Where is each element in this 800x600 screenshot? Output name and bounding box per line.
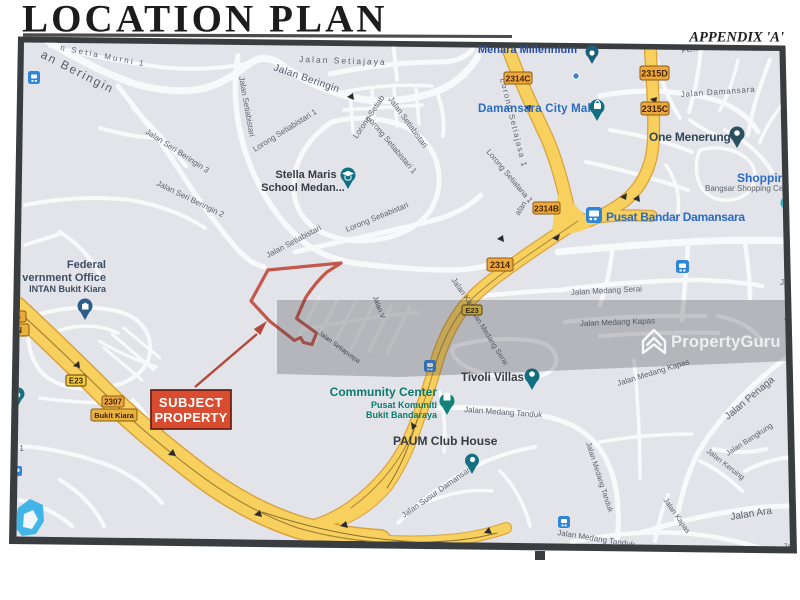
svg-text:INTAN Bukit Kiara: INTAN Bukit Kiara [29,284,107,294]
svg-text:Community Center: Community Center [330,385,438,399]
svg-text:Bukit Kiara: Bukit Kiara [94,411,134,420]
svg-text:Federal: Federal [67,259,106,271]
svg-text:Bangsar Shopping Ce: Bangsar Shopping Ce [705,184,784,193]
svg-text:2307: 2307 [104,398,122,407]
svg-text:School Medan...: School Medan... [261,182,345,194]
svg-text:Stella Maris: Stella Maris [275,169,336,181]
svg-text:vernment Office: vernment Office [22,272,106,284]
svg-text:2314B: 2314B [534,204,559,214]
svg-text:2314: 2314 [490,260,510,270]
svg-text:PAUM Club House: PAUM Club House [393,434,498,448]
svg-text:2314C: 2314C [505,74,530,84]
svg-text:E23: E23 [69,377,84,386]
svg-text:Bukit Bandaraya: Bukit Bandaraya [366,410,438,420]
svg-text:SUBJECT: SUBJECT [159,395,223,410]
svg-text:Damansara City Mall: Damansara City Mall [478,103,594,115]
svg-text:Pusat Bandar Damansara: Pusat Bandar Damansara [606,210,745,224]
svg-text:2315C: 2315C [642,104,669,114]
svg-text:2315D: 2315D [641,69,668,79]
svg-text:One Menerung: One Menerung [649,130,731,144]
svg-text:PROPERTY: PROPERTY [154,410,227,425]
svg-text:Menara Millennium: Menara Millennium [478,44,577,56]
svg-text:PropertyGuru: PropertyGuru [671,333,781,351]
svg-text:APPENDIX 'A': APPENDIX 'A' [688,30,784,46]
svg-text:Pusat Komuniti: Pusat Komuniti [371,400,437,410]
